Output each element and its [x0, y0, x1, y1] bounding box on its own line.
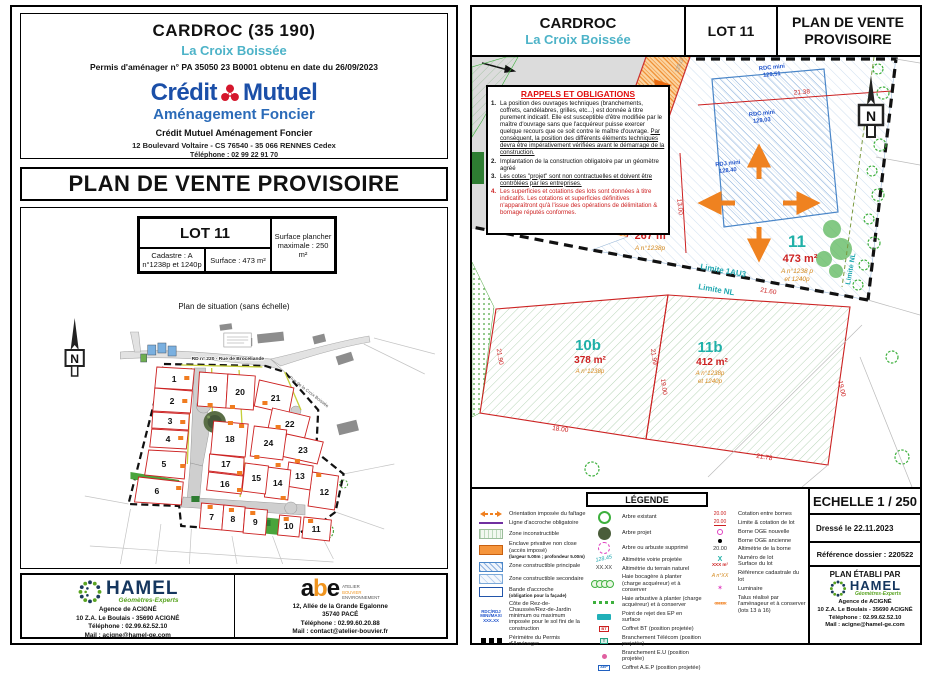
lot-number-icon: XXXX m² — [706, 556, 734, 568]
svg-text:13: 13 — [295, 471, 305, 481]
old-marker-icon — [706, 539, 734, 543]
aep-box-icon: AEP — [590, 665, 618, 671]
map-callout-box — [224, 333, 251, 347]
brand-word-credit: Crédit — [151, 79, 217, 107]
page-left: CARDROC (35 190) La Croix Boissée Permis… — [10, 5, 458, 645]
svg-text:8: 8 — [231, 514, 236, 524]
svg-text:15: 15 — [252, 473, 262, 483]
page-right: CARDROC La Croix Boissée LOT 11 PLAN DE … — [470, 5, 922, 645]
svg-text:2: 2 — [170, 396, 175, 406]
abe-phone: Téléphone : 02.99.60.20.88 — [235, 620, 447, 629]
reference-label: Référence dossier : 220522 — [810, 543, 920, 567]
rdc-rdj-icon: RDC/RDJMINI/MAXIXXX.XX — [477, 610, 505, 623]
lot-table: LOT 11 Surface plancher maximale : 250 m… — [137, 216, 337, 274]
marker-altitude-icon: 20.00 — [706, 547, 734, 553]
author-block: PLAN ÉTABLI PAR HAMEL Géomètres-Experts — [810, 567, 920, 630]
right-lot: LOT 11 — [686, 7, 778, 55]
svg-text:19: 19 — [208, 384, 218, 394]
ridge-orientation-icon — [477, 511, 505, 517]
left-main-box: LOT 11 Surface plancher maximale : 250 m… — [20, 207, 448, 569]
lot10b-surface: 378 m² — [574, 355, 606, 366]
unbuildable-zone-icon — [477, 529, 505, 539]
abe-letter-e: e — [327, 575, 339, 602]
secondary-zone-icon — [477, 574, 505, 584]
svg-text:5: 5 — [162, 459, 167, 469]
lot-dim-icon: 20.00 — [714, 520, 727, 526]
purple-line-icon — [477, 522, 505, 524]
svg-text:3: 3 — [168, 416, 173, 426]
project-subtitle: La Croix Boissée — [21, 43, 447, 58]
brand-subtitle: Aménagement Foncier — [21, 106, 447, 123]
scale-label: ECHELLE 1 / 250 — [810, 489, 920, 515]
left-footer: HAMEL Géomètres-Experts Agence de ACIGNÉ… — [20, 573, 448, 639]
svg-text:N: N — [866, 108, 876, 124]
shrub-hedge-icon — [590, 601, 618, 604]
limite-nl: Limite NL — [698, 282, 736, 297]
svg-text:18: 18 — [225, 434, 235, 444]
embankment-icon: ««««« — [706, 601, 734, 607]
svg-text:6: 6 — [154, 486, 159, 496]
hedge-dark — [472, 152, 484, 184]
legend-col-2: Arbre existant Arbre projet Arbre ou arb… — [590, 511, 702, 674]
hamel-block: HAMEL Géomètres-Experts Agence de ACIGNÉ… — [22, 575, 234, 637]
project-title: CARDROC (35 190) — [21, 21, 447, 41]
terrain-altitude-icon: XX.XX — [590, 566, 618, 572]
hedgerow-icon — [590, 580, 618, 588]
hamel-address: 10 Z.A. Le Boulais - 35690 ACIGNÉ — [22, 615, 234, 624]
svg-text:17: 17 — [221, 459, 231, 469]
block-phone: Téléphone : 02.99.62.52.10 — [817, 615, 912, 623]
dim-21-78: 21.78 — [756, 453, 774, 463]
lot-max-surface: Surface plancher maximale : 250 m² — [271, 218, 335, 272]
abe-logo: abe ATELIER BOUVIER ENVIRONNEMENT — [235, 578, 447, 601]
lot11b-cadastre-1: A n°1238p — [695, 370, 725, 377]
credit-mutuel-logo: Crédit Mutuel — [21, 79, 447, 107]
road-altitude-icon: 128.45 — [590, 554, 619, 565]
org-phone: Téléphone : 02 99 22 91 70 — [21, 152, 447, 159]
left-header-box: CARDROC (35 190) La Croix Boissée Permis… — [20, 13, 448, 159]
legend-col-1: Orientation imposée du faîtage Ligne d'a… — [477, 511, 587, 650]
dim-21-38: 21.38 — [794, 88, 811, 96]
hamel-name: HAMEL — [106, 579, 179, 598]
legend-strip: LÉGENDE Orientation imposée du faîtage L… — [472, 487, 920, 643]
org-name: Crédit Mutuel Aménagement Foncier — [21, 128, 447, 138]
legend-col-3: 20.00Cotation entre bornes 20.00Limite &… — [706, 511, 806, 616]
block-mail: Mail : acigne@hamel-ge.com — [817, 622, 912, 630]
svg-text:9: 9 — [253, 517, 258, 527]
telecom-icon: T — [590, 638, 618, 644]
permit-line: Permis d'aménager n° PA 35050 23 B0001 o… — [21, 62, 447, 72]
planned-tree-icon — [590, 527, 618, 540]
abe-letter-b: b — [313, 575, 327, 602]
svg-text:21: 21 — [271, 393, 281, 403]
credit-mutuel-icon — [220, 83, 240, 103]
block-agency: Agence de ACIGNÉ — [817, 599, 912, 607]
eu-connection-icon — [590, 654, 618, 659]
svg-text:12: 12 — [320, 487, 330, 497]
svg-text:16: 16 — [220, 479, 230, 489]
block-address: 10 Z.A. Le Boulais - 35690 ACIGNÉ — [817, 607, 912, 615]
plan-title: PLAN DE VENTE PROVISOIRE — [20, 167, 448, 201]
obligation-item-4: 4. Les superficies et cotations des lots… — [491, 188, 665, 216]
lot11b-cadastre-2: et 1240p — [698, 378, 723, 385]
ep-outlet-icon — [590, 614, 618, 620]
detail-plan-area: 10 267 m² A n°1238p 11 473 m² A n°1238 p… — [472, 57, 920, 487]
hamel-mail: Mail : acigne@hamel-ge.com — [22, 632, 234, 641]
lot11-cadastre-2: et 1240p — [784, 276, 810, 283]
svg-text:7: 7 — [209, 512, 214, 522]
bound-dim-icon: 20.00 — [706, 512, 734, 517]
svg-text:20: 20 — [235, 387, 245, 397]
existing-tree-icon — [590, 511, 618, 524]
obligations-box: RAPPELS ET OBLIGATIONS 1. La position de… — [486, 85, 670, 235]
streetlight-icon: ✶ — [706, 585, 734, 592]
lot11b-surface: 412 m² — [696, 357, 728, 368]
north-arrow: N — [66, 318, 84, 376]
lot11-cadastre-1: A n°1238 p — [780, 267, 813, 275]
org-address: 12 Boulevard Voltaire - CS 76540 - 35 06… — [21, 141, 447, 150]
date-label: Dressé le 22.11.2023 — [810, 515, 920, 543]
obligations-title: RAPPELS ET OBLIGATIONS — [491, 89, 665, 99]
primary-zone-icon — [477, 562, 505, 572]
svg-text:10: 10 — [284, 521, 294, 531]
abe-block: abe ATELIER BOUVIER ENVIRONNEMENT 12, Al… — [234, 575, 447, 637]
enclave-icon — [477, 545, 505, 555]
cadastre-ref-icon: A n°XX — [706, 574, 734, 579]
abe-mail: Mail : contact@atelier-bouvier.fr — [235, 628, 447, 637]
abe-address-2: 35740 PACÉ — [235, 611, 447, 620]
abe-stack-3: ENVIRONNEMENT — [342, 595, 380, 601]
lot11b-number: 11b — [697, 339, 722, 356]
document-canvas: { "left": { "header": { "title": "CARDRO… — [0, 0, 930, 650]
hamel-phone: Téléphone : 02.99.62.52.10 — [22, 623, 234, 632]
map-caption: Plan de situation (sans échelle) — [21, 302, 447, 311]
svg-text:N: N — [70, 352, 79, 366]
obligation-item-3: 3. Les cotes "projet" sont non contractu… — [491, 173, 665, 187]
abe-letter-a: a — [301, 575, 313, 602]
svg-text:22: 22 — [285, 419, 295, 429]
legend-title: LÉGENDE — [586, 492, 708, 507]
perimeter-icon — [477, 638, 505, 643]
attach-band-icon — [477, 587, 505, 597]
svg-text:23: 23 — [298, 445, 308, 455]
hamel-tagline-small: Géomètres-Experts — [850, 591, 901, 597]
dim-18-00: 18.00 — [552, 425, 569, 434]
hamel-logo: HAMEL Géomètres-Experts — [22, 578, 234, 604]
dim-21-60: 21.60 — [760, 287, 778, 297]
hamel-agency: Agence de ACIGNÉ — [22, 606, 234, 615]
hamel-logo-small: HAMEL Géomètres-Experts — [829, 579, 901, 597]
lot10-cadastre: A n°1238p — [634, 244, 666, 252]
svg-text:24: 24 — [264, 438, 274, 448]
title-block: ECHELLE 1 / 250 Dressé le 22.11.2023 Réf… — [808, 489, 920, 645]
road-label-rd220: RD n° 220 - Rue de Brocéliande — [192, 356, 265, 362]
svg-text:1: 1 — [172, 374, 177, 384]
situation-map: 1 2 3 4 5 6 7 8 9 10 11 12 13 14 15 16 1… — [29, 314, 441, 564]
lot-surface: Surface : 473 m² — [205, 248, 271, 272]
bt-box-icon: BT — [590, 626, 618, 632]
new-marker-icon — [706, 529, 734, 535]
lot10b-number: 10b — [575, 337, 601, 354]
lot10b-cadastre: A n°1238p — [575, 368, 605, 375]
right-title: CARDROC — [540, 15, 617, 32]
brand-word-mutuel: Mutuel — [243, 79, 317, 107]
svg-text:14: 14 — [273, 478, 283, 488]
abe-address-1: 12, Allée de la Grande Egalonne — [235, 603, 447, 612]
lot11-surface: 473 m² — [783, 253, 818, 265]
svg-text:11: 11 — [312, 524, 321, 534]
removed-tree-icon — [590, 542, 618, 554]
obligation-item-2: 2. Implantation de la construction oblig… — [491, 158, 665, 172]
svg-text:4: 4 — [166, 434, 171, 444]
right-subtitle: La Croix Boissée — [525, 32, 631, 47]
right-header: CARDROC La Croix Boissée LOT 11 PLAN DE … — [472, 7, 920, 57]
lot11-number: 11 — [788, 232, 806, 251]
hamel-icon-small — [829, 579, 847, 597]
hamel-icon — [77, 578, 103, 604]
lot-number: LOT 11 — [139, 218, 271, 248]
lot-cadastre: Cadastre : A n°1238p et 1240p — [139, 248, 205, 272]
obligation-item-1: 1. La position des ouvrages techniques (… — [491, 100, 665, 157]
right-plan-title: PLAN DE VENTE PROVISOIRE — [778, 7, 918, 55]
